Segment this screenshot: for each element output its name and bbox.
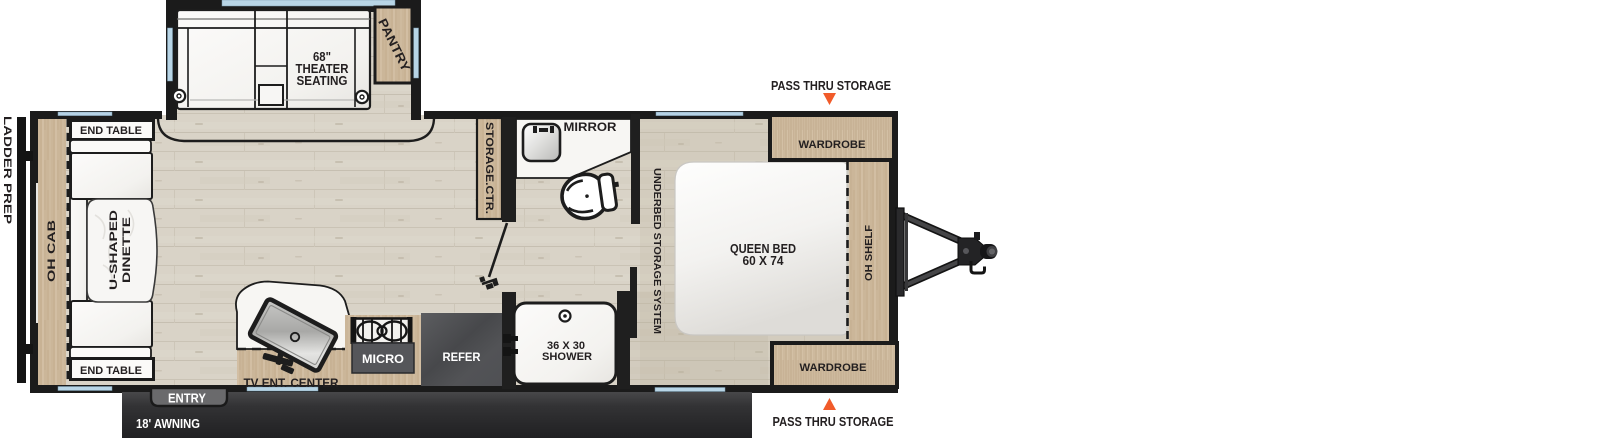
- svg-text:TV ENT. CENTER: TV ENT. CENTER: [244, 376, 339, 390]
- svg-text:STORAGE.CTR.: STORAGE.CTR.: [483, 122, 495, 214]
- svg-text:MICRO: MICRO: [362, 354, 404, 366]
- svg-text:PASS THRU STORAGE: PASS THRU STORAGE: [773, 414, 894, 429]
- svg-text:SEATING: SEATING: [297, 74, 348, 88]
- svg-text:WARDROBE: WARDROBE: [800, 362, 867, 374]
- svg-text:18' AWNING: 18' AWNING: [136, 416, 200, 431]
- svg-text:REFER: REFER: [443, 350, 481, 364]
- svg-text:SHOWER: SHOWER: [542, 351, 592, 363]
- svg-text:END TABLE: END TABLE: [80, 125, 142, 137]
- svg-text:MIRROR: MIRROR: [564, 120, 617, 134]
- svg-text:UNDERBED STORAGE SYSTEM: UNDERBED STORAGE SYSTEM: [651, 168, 663, 334]
- svg-text:OH SHELF: OH SHELF: [863, 224, 875, 281]
- svg-text:DINETTE: DINETTE: [121, 217, 133, 283]
- svg-text:ENTRY: ENTRY: [168, 392, 207, 406]
- svg-text:60 X 74: 60 X 74: [743, 254, 784, 268]
- svg-text:OH CAB: OH CAB: [46, 220, 58, 282]
- svg-text:WARDROBE: WARDROBE: [799, 139, 866, 151]
- svg-text:U-SHAPED: U-SHAPED: [108, 210, 120, 290]
- svg-text:PASS THRU STORAGE: PASS THRU STORAGE: [771, 78, 891, 93]
- svg-text:END TABLE: END TABLE: [80, 365, 142, 377]
- svg-text:LADDER PREP: LADDER PREP: [1, 116, 13, 224]
